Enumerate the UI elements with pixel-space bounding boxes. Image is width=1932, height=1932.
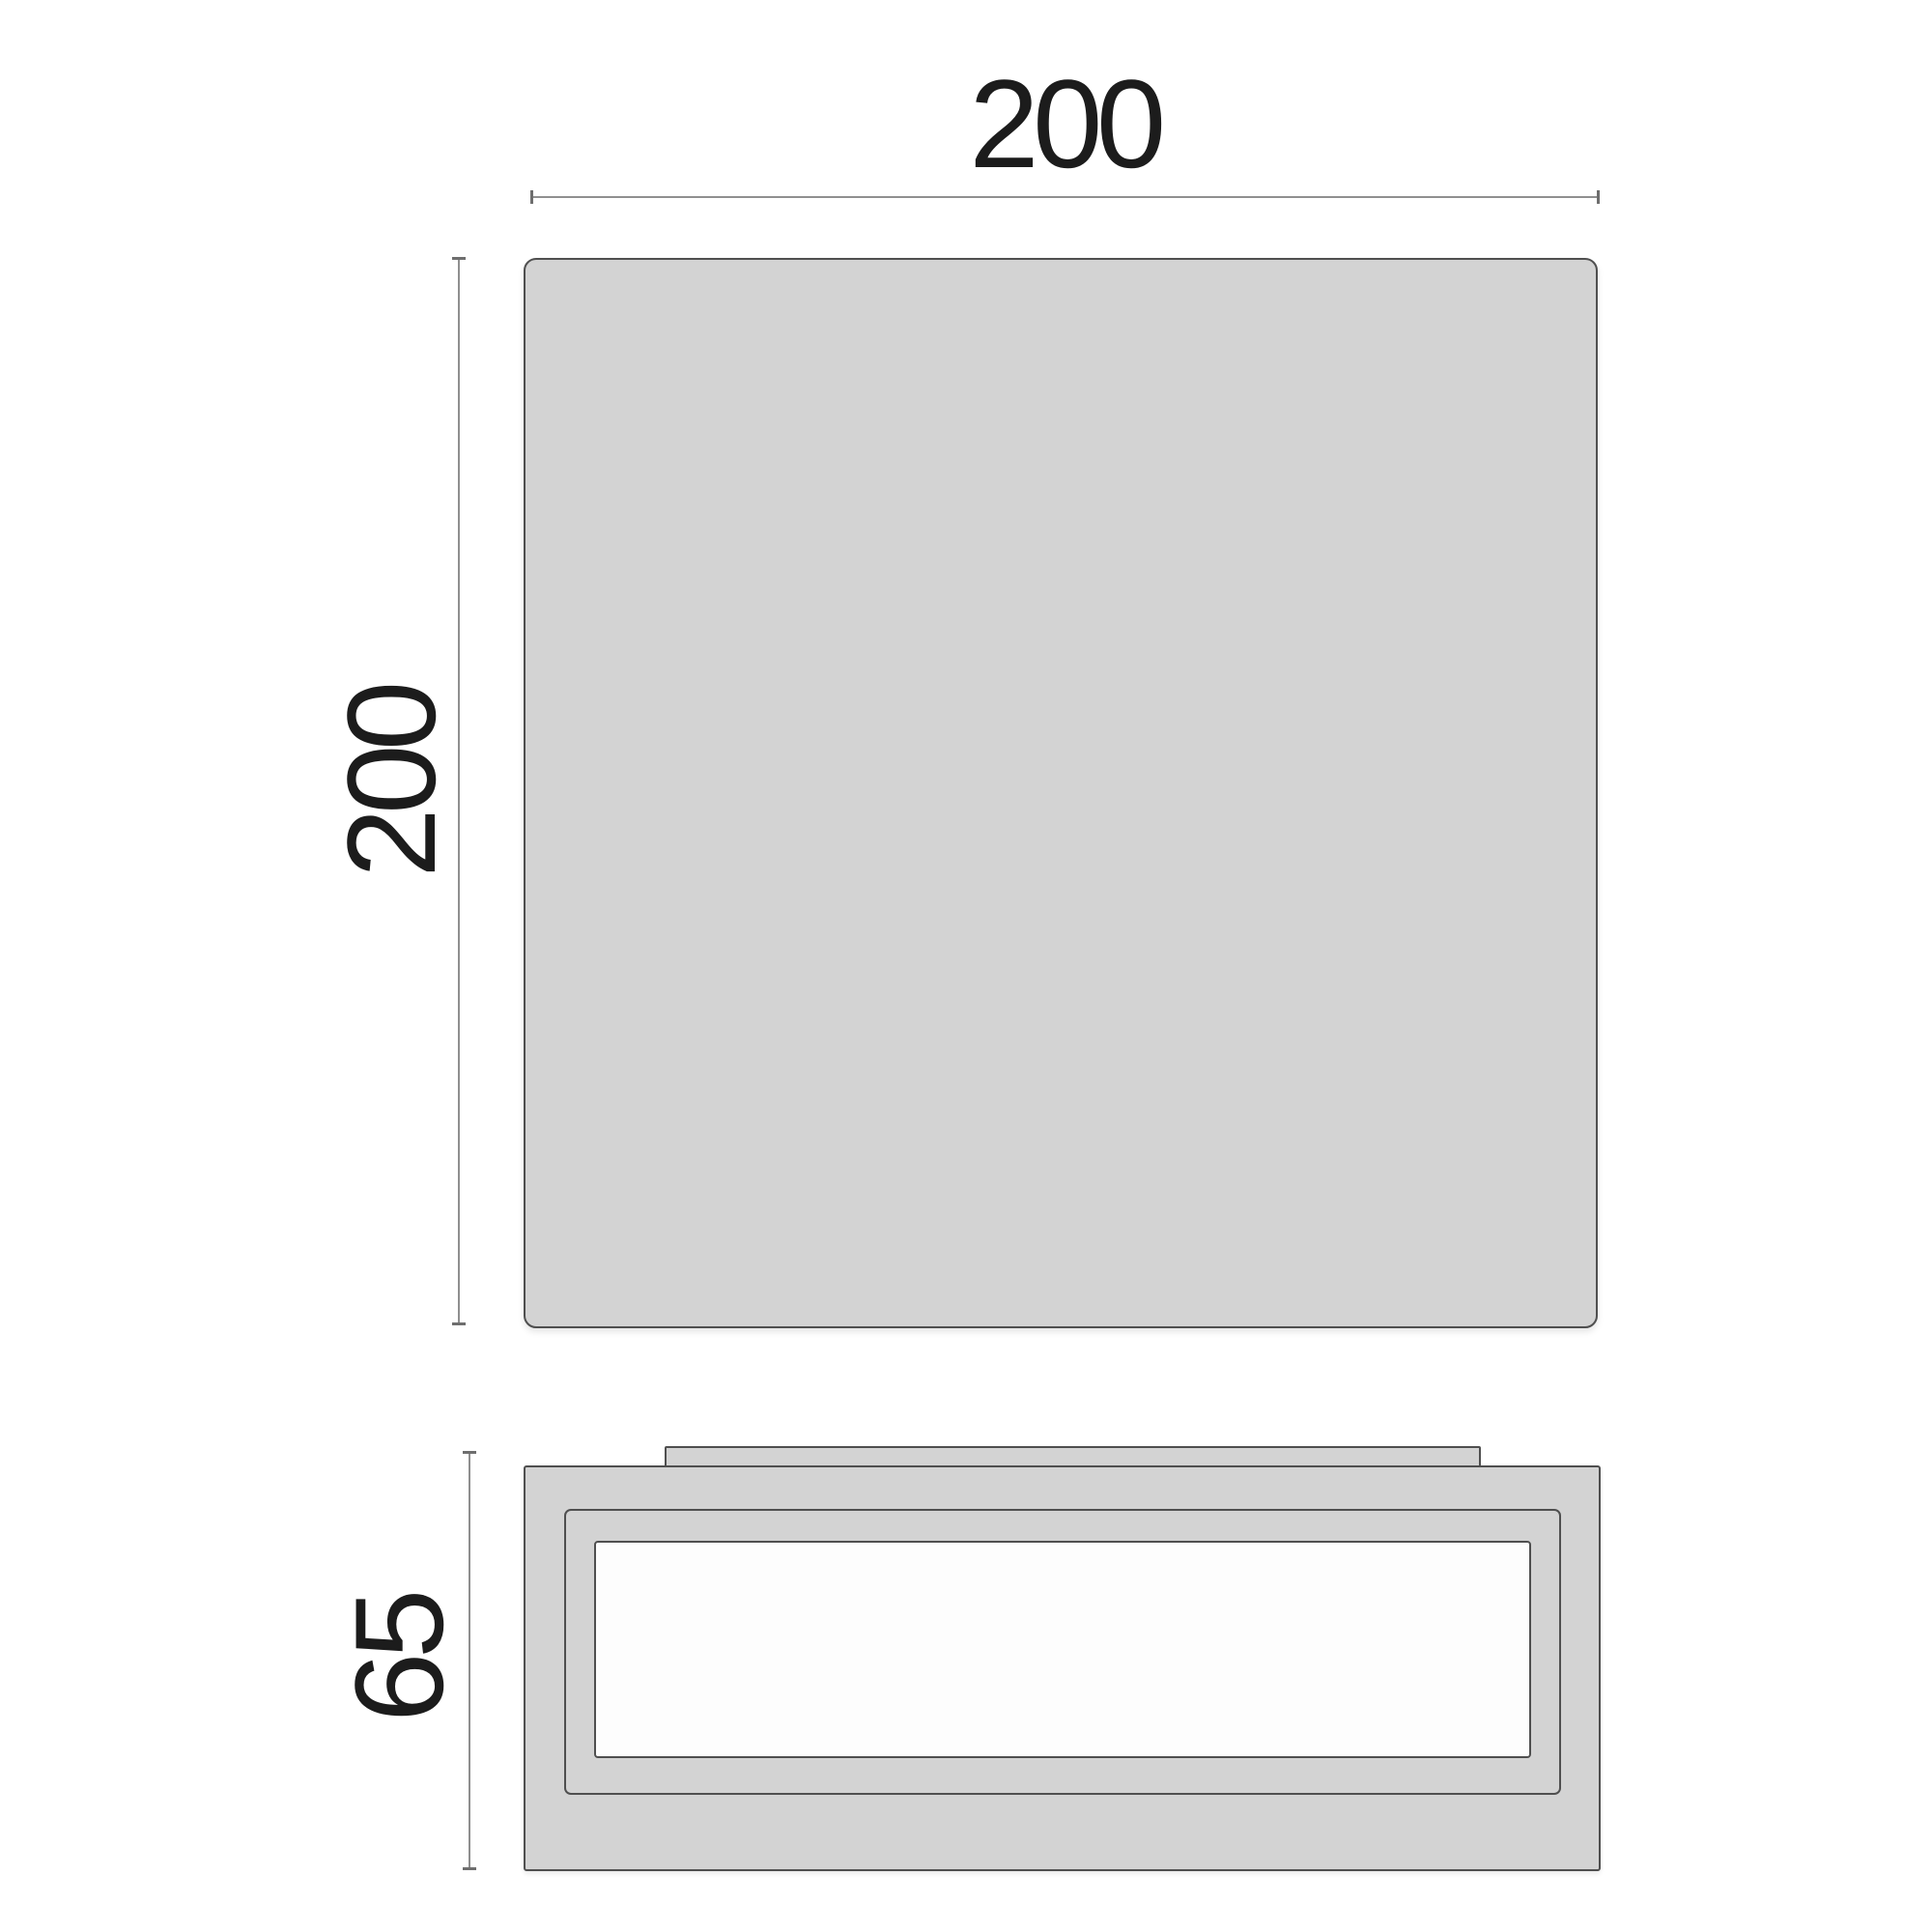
dimension-tick — [452, 257, 466, 260]
top-view-panel-face — [524, 258, 1598, 1328]
technical-drawing-canvas: 200 200 65 — [0, 0, 1932, 1932]
side-view-diffuser-panel — [594, 1541, 1531, 1758]
dimension-tick — [452, 1322, 466, 1325]
dimension-tick — [530, 190, 533, 204]
dimension-tick — [463, 1451, 476, 1454]
dimension-tick — [463, 1867, 476, 1870]
side-view-height-label: 65 — [335, 1369, 463, 1932]
side-view-height-dimension-line — [469, 1452, 470, 1869]
top-view-width-dimension-line — [531, 196, 1599, 198]
top-view-height-dimension-line — [458, 258, 460, 1324]
top-view-width-label: 200 — [823, 60, 1306, 187]
dimension-tick — [1597, 190, 1600, 204]
top-view-height-label: 200 — [327, 493, 455, 1072]
side-view-mounting-lip — [665, 1446, 1481, 1467]
